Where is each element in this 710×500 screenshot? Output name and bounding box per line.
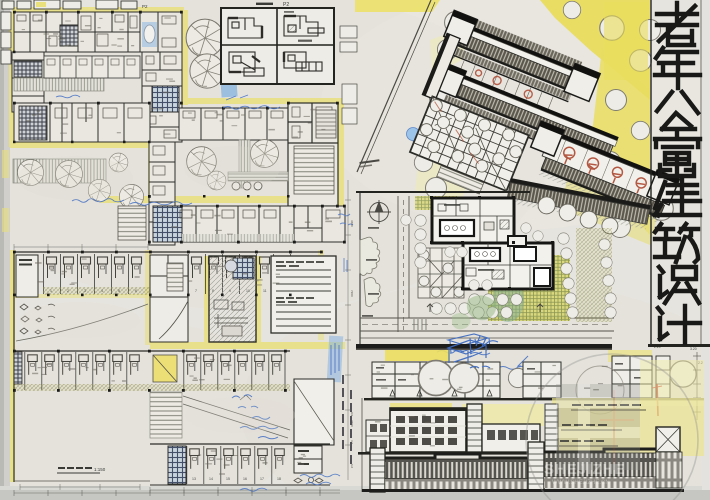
svg-text:13: 13 <box>192 477 196 481</box>
svg-text:14: 14 <box>209 477 213 481</box>
svg-text:P2: P2 <box>283 2 289 8</box>
svg-text:3.20: 3.20 <box>690 347 697 351</box>
svg-text:5: 5 <box>118 289 120 293</box>
svg-text:18: 18 <box>277 477 281 481</box>
svg-text:WWW.SHEJIZHE.CN: WWW.SHEJIZHE.CN <box>552 480 610 486</box>
svg-text:2: 2 <box>67 289 69 293</box>
svg-text:P2: P2 <box>142 4 148 9</box>
svg-text:SHEJIZHE: SHEJIZHE <box>544 461 625 478</box>
svg-text:3: 3 <box>84 289 86 293</box>
svg-text:11: 11 <box>263 289 267 293</box>
svg-text:1: 1 <box>50 289 52 293</box>
svg-text:4: 4 <box>101 289 103 293</box>
svg-text:3.20: 3.20 <box>394 411 403 416</box>
svg-text:15: 15 <box>226 477 230 481</box>
svg-text:3600: 3600 <box>350 220 354 227</box>
svg-text:9.9: 9.9 <box>350 412 354 417</box>
svg-text:6: 6 <box>135 289 137 293</box>
svg-text:17: 17 <box>260 477 264 481</box>
svg-text:3.3: 3.3 <box>350 440 354 445</box>
svg-text:7200: 7200 <box>350 290 354 297</box>
svg-text:6.6: 6.6 <box>350 464 354 469</box>
svg-text:1:150: 1:150 <box>94 467 106 472</box>
svg-text:3600: 3600 <box>350 420 354 427</box>
svg-text:16: 16 <box>243 477 247 481</box>
svg-text:7: 7 <box>195 289 197 293</box>
